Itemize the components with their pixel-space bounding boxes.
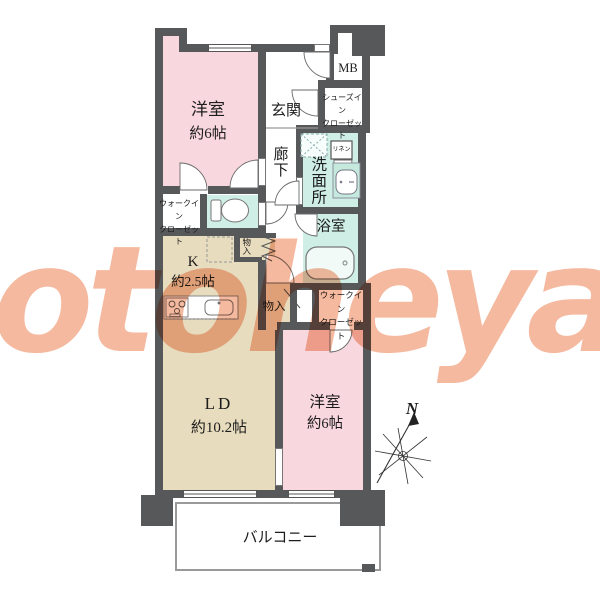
balcony-label: バルコニー — [214, 527, 346, 550]
room-size: 約10.2帖 — [169, 417, 269, 440]
compass-north-label: N — [399, 399, 425, 419]
shoes-in-closet-label: シューズイン クローゼット — [319, 92, 365, 143]
living-dining-label: LD 約10.2帖 — [169, 391, 269, 439]
room-name: LD — [169, 391, 269, 417]
entrance-label: 玄関 — [262, 100, 310, 123]
watermark: otoheya — [0, 226, 600, 374]
washbasin-icon — [333, 163, 360, 198]
meter-box-label: MB — [332, 59, 364, 78]
floor-plan: 洋室 約6帖 玄関 シューズイン クローゼット MB 廊下 洗面所 リネン ウォ… — [0, 0, 600, 600]
label-line: クローゼット — [319, 118, 365, 144]
room-size: 約6帖 — [171, 123, 245, 146]
hallway-label: 廊下 — [268, 146, 291, 178]
washroom-label: 洗面所 — [306, 156, 329, 206]
bedroom-bottom-label: 洋室 約6帖 — [288, 391, 362, 436]
room-size: 約6帖 — [288, 414, 362, 436]
room-name: 洋室 — [171, 97, 245, 123]
linen-label: リネン — [331, 146, 352, 155]
label-line: シューズイン — [319, 92, 365, 118]
room-name: 洋室 — [288, 391, 362, 414]
compass-icon — [375, 412, 431, 484]
bedroom-top-label: 洋室 約6帖 — [171, 97, 245, 145]
